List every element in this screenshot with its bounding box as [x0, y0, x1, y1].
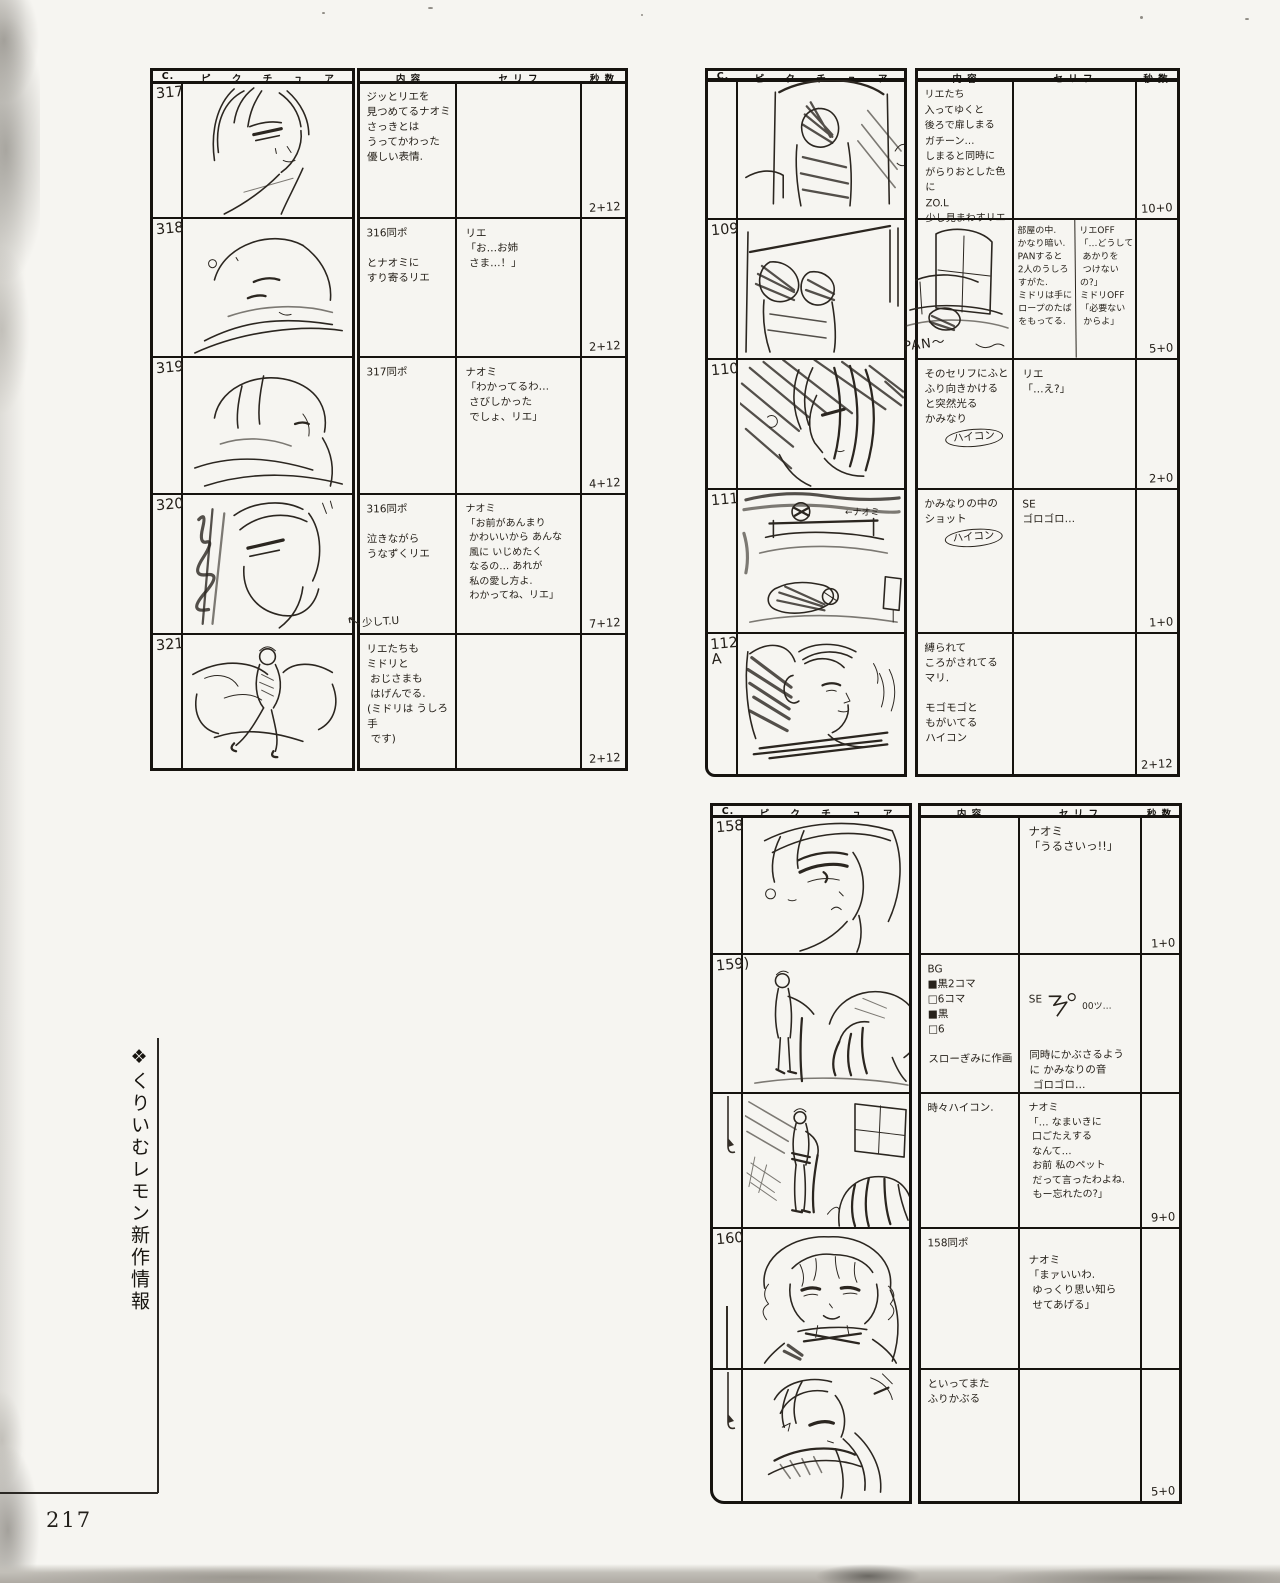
dialogue-cell: [458, 82, 580, 217]
se-note: 00ツ…: [1082, 1000, 1112, 1015]
seconds-value: 1+0: [1150, 935, 1175, 950]
storyboard-sketch: [185, 358, 352, 493]
storyboard-row: 319: [153, 356, 352, 493]
storyboard-row: そのセリフにふと ふり向きかける と突然光る かみなり ハイコン リエ 「…え?…: [918, 358, 1177, 488]
seconds-value: 2+0: [1148, 470, 1173, 485]
storyboard-row: BG ■黒2コマ □6コマ ■黒 □6 スローぎみに作画 SE 00ツ… 同時に…: [921, 953, 1179, 1092]
storyboard-row: 316同ポ とナオミに すり寄るリエ リエ 「お…お姉 さま…！」 2+12: [360, 217, 625, 356]
picture-cell: [745, 1370, 909, 1501]
storyboard-row: [713, 1368, 909, 1501]
seconds-value: 10+0: [1141, 200, 1173, 216]
cut-number: 318: [155, 221, 184, 237]
storyboard-row: 時々ハイコン. ナオミ 「… なまいきに 口ごたえする なんて… お前 私のペッ…: [921, 1092, 1179, 1227]
content-cell: [920, 816, 1018, 953]
storyboard-row: [713, 1092, 909, 1227]
storyboard-sketch: [745, 1094, 909, 1227]
storyboard-sketch: [745, 1370, 909, 1501]
storyboard-row: リエたちも ミドリと おじさまも はげんでる. (ミドリは うしろ手 です) 2…: [360, 633, 625, 768]
storyboard-sketch: [185, 635, 352, 768]
dialogue-cell: ナオミ 「まァいいわ. ゆっくり思い知ら せてあげる」: [1021, 1228, 1140, 1368]
camera-note: 少しT.U: [362, 613, 400, 631]
content-cell: BG ■黒2コマ □6コマ ■黒 □6 スローぎみに作画: [920, 954, 1018, 1092]
scan-speck: [1140, 16, 1143, 19]
content-cell: 158同ポ: [920, 1228, 1018, 1368]
picture-cell: [185, 635, 352, 768]
content-cell: かみなりの中の ショット ハイコン: [917, 490, 1012, 633]
cut-number: 112 A: [710, 636, 740, 668]
content-cell: といってまた ふりかぶる: [920, 1369, 1018, 1501]
storyboard-sketch: [185, 219, 352, 356]
storyboard-table1-picture-box: C. ピ ク チ ュ ア 317 318: [150, 68, 355, 771]
storyboard-sketch-wide-109: [740, 222, 1010, 354]
dialogue-cell: ナオミ 「… なまいきに 口ごたえする なんて… お前 私のペット だって言った…: [1021, 1093, 1140, 1227]
scan-speck: [1245, 18, 1249, 20]
content-cell: リエたち 入ってゆくと 後ろで扉しまる ガチーン… しまると同時に がらりおとし…: [917, 80, 1012, 219]
storyboard-row: 321: [153, 633, 352, 768]
cut-number: 158: [715, 819, 744, 835]
picture-cell: [745, 955, 909, 1092]
storyboard-row: 318: [153, 217, 352, 356]
dialogue-cell: ナオミ 「お前があんまり かわいいから あんな 風に いじめたく なるの… あれ…: [458, 494, 580, 633]
dialogue-cell: [1015, 79, 1135, 218]
haicon-circled-note: ハイコン: [945, 427, 1004, 450]
picture-cell: [745, 817, 909, 953]
dialogue-cell: [1015, 633, 1135, 774]
picture-cell: [745, 1229, 909, 1368]
picture-cell: [745, 1094, 909, 1227]
dialogue-cell: リエ 「…え?」: [1015, 359, 1135, 488]
storyboard-row: ナオミ 「うるさいっ!!」 1+0: [921, 815, 1179, 953]
content-cell: 316同ポ とナオミに すり寄るリエ: [359, 219, 455, 357]
dialogue-cell: [458, 634, 580, 768]
picture-cell: [740, 634, 904, 774]
lightning-sketch: [1045, 992, 1079, 1018]
content-cell: そのセリフにふと ふり向きかける と突然光る かみなり ハイコン: [917, 360, 1012, 489]
dialogue-cell: ナオミ 「わかってるわ… さびしかった でしょ、リエ」: [458, 357, 580, 493]
dialogue-text: 同時にかぶさるよう に かみなりの音 ゴロゴロ…: [1029, 1047, 1138, 1093]
seconds-value: 5+0: [1148, 340, 1173, 355]
content-text: そのセリフにふと ふり向きかける と突然光る かみなり: [924, 368, 1008, 426]
storyboard-table3-text-box: 内 容 セ リ フ 秒 数 ナオミ 「うるさいっ!!」 1+0 BG ■黒2コマ…: [918, 803, 1182, 1504]
storyboard-sketch: [185, 495, 352, 633]
storyboard-sketch: [745, 1229, 909, 1368]
storyboard-row: かみなりの中の ショット ハイコン SE ゴロゴロ… 1+0: [918, 488, 1177, 632]
dialogue-cell: リエ 「お…お姉 さま…！」: [458, 218, 580, 356]
storyboard-sketch: [740, 360, 904, 488]
content-cell: 317同ポ: [359, 358, 455, 494]
content-cell: 時々ハイコン.: [920, 1093, 1018, 1227]
storyboard-sketch: [740, 80, 904, 218]
content-cell: リエたちも ミドリと おじさまも はげんでる. (ミドリは うしろ手 です): [359, 635, 455, 769]
cut-number: 319: [155, 360, 184, 376]
storyboard-table3-picture-box: C. ピ ク チ ュ ア 158 159): [710, 803, 912, 1504]
cut-number: 109: [710, 222, 739, 238]
storyboard-row: ジッとリエを 見つめてるナオミ さっきとは うってかわった 優しい表情. 2+1…: [360, 81, 625, 217]
storyboard-row: 158同ポ ナオミ 「まァいいわ. ゆっくり思い知ら せてあげる」: [921, 1227, 1179, 1368]
cut-number: 321: [155, 637, 184, 653]
character-pointer-note: ←ナオミ: [845, 505, 880, 518]
dialogue-cell: SE ゴロゴロ…: [1015, 489, 1135, 632]
storyboard-row: [708, 78, 904, 218]
scan-edge-smudge: [0, 0, 40, 1583]
picture-cell: [185, 219, 352, 356]
seconds-value: 1+0: [1148, 614, 1173, 629]
arrow-icon: [346, 615, 360, 625]
dialogue-cell: SE 00ツ… 同時にかぶさるよう に かみなりの音 ゴロゴロ…: [1021, 954, 1140, 1092]
storyboard-sketch: [745, 955, 909, 1092]
storyboard-row: 317同ポ ナオミ 「わかってるわ… さびしかった でしょ、リエ」 4+12: [360, 356, 625, 493]
cut-number: 160: [715, 1231, 744, 1247]
seconds-value: 2+12: [1141, 756, 1173, 772]
continuation-mark: [721, 1372, 737, 1436]
content-cell: ジッとリエを 見つめてるナオミ さっきとは うってかわった 優しい表情.: [359, 83, 455, 218]
picture-cell: [185, 358, 352, 493]
content-cell: 縛られて ころがされてる マリ. モゴモゴと もがいてる ハイコン: [917, 634, 1012, 775]
haicon-circled-note: ハイコン: [944, 527, 1003, 550]
dialogue-cell: リエOFF 「…どうして あかりを つけないの?」 ミドリOFF 「必要ない か…: [1075, 220, 1135, 359]
storyboard-sketch: [745, 817, 909, 953]
picture-cell: [740, 360, 904, 488]
picture-cell: [185, 83, 352, 217]
storyboard-sketch: [185, 83, 352, 217]
seconds-value: 7+12: [589, 615, 621, 631]
storyboard-table1-text-box: 内 容 セ リ フ 秒 数 ジッとリエを 見つめてるナオミ さっきとは うってか…: [357, 68, 628, 771]
seconds-value: 2+12: [589, 338, 621, 354]
scan-speck: [428, 7, 433, 9]
picture-cell: [740, 80, 904, 218]
caption-rule-horizontal: [0, 1492, 158, 1494]
storyboard-sketch: [740, 634, 904, 774]
storyboard-row: 320: [153, 493, 352, 633]
scan-speck: [641, 14, 643, 16]
cut-number: 110: [710, 362, 739, 378]
storyboard-row: リエたち 入ってゆくと 後ろで扉しまる ガチーン… しまると同時に がらりおとし…: [918, 78, 1177, 218]
side-caption-vertical: ❖くりいむレモン新作情報: [126, 1046, 153, 1313]
storyboard-row: 316同ポ 泣きながら うなずくリエ 少しT.U ナオミ 「お前があんまり かわ…: [360, 493, 625, 633]
storyboard-row: 159): [713, 953, 909, 1092]
seconds-value: 5+0: [1150, 1483, 1175, 1498]
scanned-storyboard-page: { "page": { "number": "217", "side_capti…: [0, 0, 1280, 1583]
cut-number: 317: [155, 85, 184, 101]
storyboard-row: といってまた ふりかぶる 5+0: [921, 1368, 1179, 1501]
storyboard-row: 112 A: [708, 632, 904, 774]
scan-speck: [322, 12, 325, 14]
content-cell: 部屋の中. かなり暗い. PANすると 2人のうしろ すがた. ミドリは手に ロ…: [1013, 220, 1076, 359]
dialogue-cell: [1021, 1369, 1140, 1501]
split-note-cell: 部屋の中. かなり暗い. PANすると 2人のうしろ すがた. ミドリは手に ロ…: [1014, 220, 1135, 358]
continuation-line: [726, 1306, 728, 1368]
content-note-wrap: 少しT.U: [360, 495, 455, 633]
se-label: SE: [1029, 992, 1042, 1007]
storyboard-row: 317: [153, 81, 352, 217]
page-number: 217: [46, 1508, 92, 1532]
storyboard-table2-text-box: 内 容 セ リ フ 秒 数 リエたち 入ってゆくと 後ろで扉しまる ガチーン… …: [915, 68, 1180, 777]
storyboard-table2-picture-box: C. ピ ク チ ュ ア 109 110: [705, 68, 907, 777]
cut-number: 111: [710, 492, 739, 508]
storyboard-row: 160: [713, 1227, 909, 1368]
caption-rule-vertical: [157, 1038, 159, 1493]
continuation-mark: [721, 1096, 737, 1160]
dialogue-cell: ナオミ 「うるさいっ!!」: [1021, 816, 1140, 953]
seconds-value: 2+12: [589, 750, 621, 766]
seconds-value: 4+12: [589, 475, 621, 491]
seconds-value: 9+0: [1150, 1209, 1175, 1224]
seconds-value: 2+12: [589, 199, 621, 215]
storyboard-row: 158: [713, 815, 909, 953]
content-text: かみなりの中の ショット: [924, 498, 998, 526]
storyboard-row: 110: [708, 358, 904, 488]
scan-edge-bottom: [0, 1564, 1280, 1583]
cut-number: 320: [155, 497, 184, 513]
picture-cell: [185, 495, 352, 633]
storyboard-row: 縛られて ころがされてる マリ. モゴモゴと もがいてる ハイコン 2+12: [918, 632, 1177, 774]
